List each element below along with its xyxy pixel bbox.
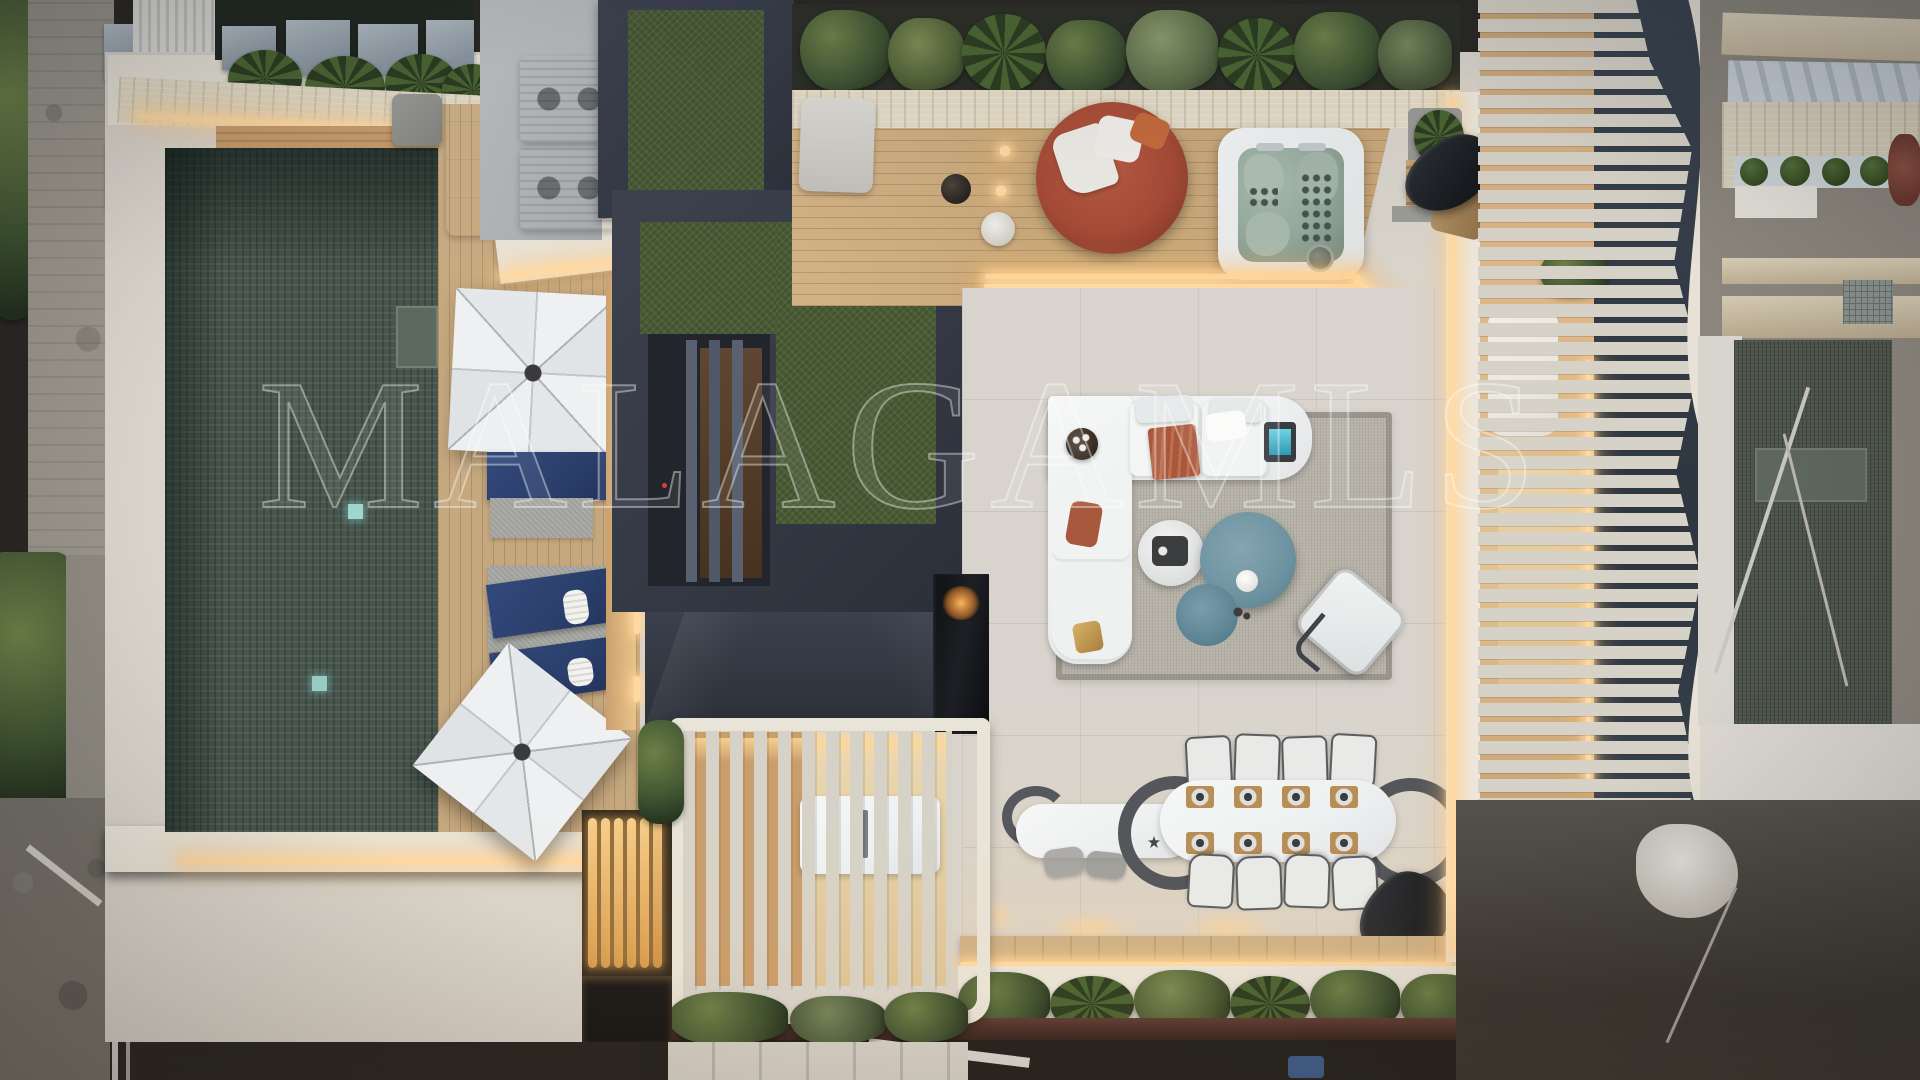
shrub [1294,12,1380,90]
stairwell-louver [709,340,720,582]
espresso-side-table [1066,428,1098,460]
shrub [888,18,964,90]
grass-plant [962,14,1046,92]
dining-chair [1235,855,1283,911]
gold-louver [601,818,610,968]
terracotta-coil [1888,134,1920,206]
navy-daybed [487,452,610,500]
roof-apron-bevel [645,612,975,726]
olive-shrub [1126,10,1218,92]
pergola-plants [884,992,968,1042]
pool-bench-step [396,306,438,368]
table-tray [1152,536,1188,566]
parasol [448,288,618,458]
grass-plant [1218,18,1296,92]
led-strip [180,858,638,863]
place-setting [1186,786,1214,808]
place-setting [1282,786,1310,808]
white-ball-pillow [1236,570,1258,592]
gold-louver [614,818,623,968]
place-setting [1234,832,1262,854]
gold-tray [1072,620,1105,654]
spa-jets [1248,186,1278,208]
skylight-lawn [628,10,764,194]
cypress-ball [1740,158,1768,186]
grab-bar [1298,143,1326,151]
ground-concrete [0,798,114,1080]
deck-mat [490,498,593,538]
bollard-light [1000,146,1010,156]
pale-lounger [798,97,875,194]
pergola-plants [668,992,788,1044]
pergola-frame [670,718,990,1024]
shrub [800,10,890,90]
white-pillow [1204,409,1248,442]
swimming-pool [165,148,438,832]
white-tray [1222,594,1262,634]
blue-tarp [1288,1056,1324,1078]
bollard-light [996,186,1006,196]
place-setting [1330,832,1358,854]
garden-hedge [0,552,70,808]
stairwell-louver [686,340,697,582]
tablet-screen [1269,429,1291,455]
cypress-ball [1780,156,1810,186]
sofa-backrest [1135,395,1192,424]
spa-filter-lid [1306,244,1334,272]
metal-mesh [1843,280,1893,324]
shrub [1378,20,1452,90]
cypress-ball [1822,158,1850,186]
place-setting [1330,786,1358,808]
cypress-ball [1860,156,1890,186]
roof-edge-band [105,826,650,872]
led-strip [985,274,1361,279]
walkway [668,1042,968,1080]
stairwell-louver [732,340,743,582]
gold-louver [627,818,636,968]
plant-pot [941,174,971,204]
ghost-chair [1085,850,1127,880]
pool-light [312,676,327,691]
place-setting [1234,786,1262,808]
neighbour-beam [1721,13,1920,62]
place-setting [1186,832,1214,854]
alarm-light [662,483,667,488]
pool-light [348,504,363,519]
grab-bar [1256,143,1284,151]
dining-chair [1187,853,1236,909]
shrub [1046,20,1126,92]
gold-louver [653,818,662,968]
hedge-plants [638,720,684,824]
rooftop-aerial-photo: MALAGAMLS [0,0,1920,1080]
dining-chair [1283,853,1331,909]
white-panel [1735,186,1817,218]
round-side-table [981,212,1015,246]
gold-louver [640,818,649,968]
led-strip [634,676,640,702]
spa-jets [1300,172,1334,246]
gold-louver [588,818,597,968]
wet-reflection [582,976,672,1042]
neighbour-deck-band [1700,724,1920,802]
pergola-plants [790,996,886,1044]
place-setting [1282,832,1310,854]
membrane-roll [1728,60,1920,107]
concrete-wall [28,0,114,565]
terracotta-throw [1147,424,1200,481]
fire-glow [942,586,980,620]
side-table [392,94,442,146]
